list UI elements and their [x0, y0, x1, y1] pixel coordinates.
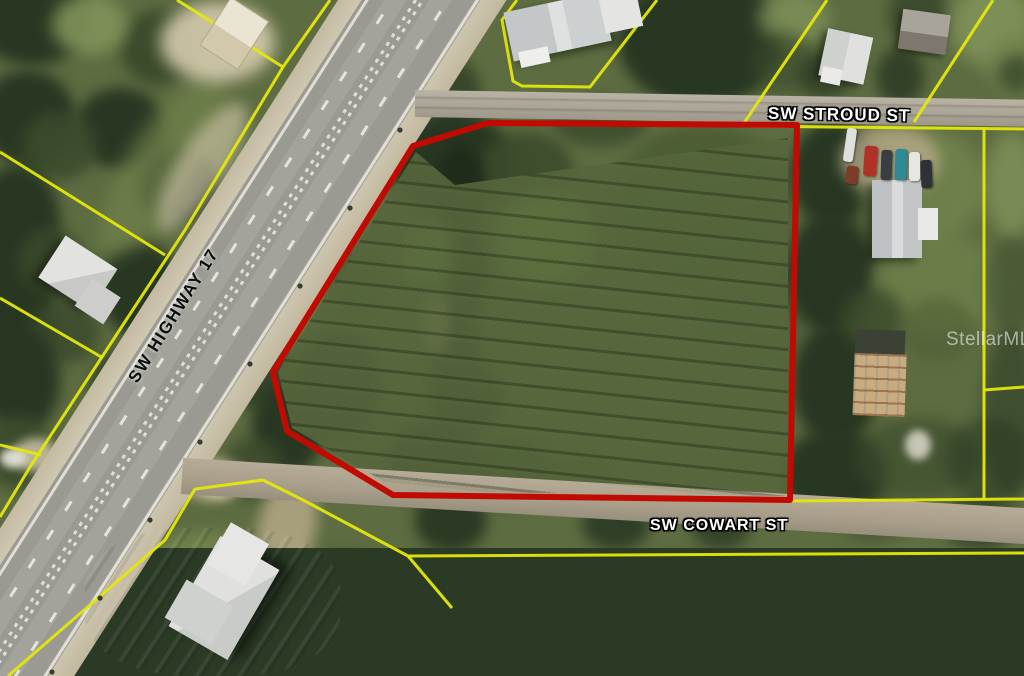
vehicle-red-truck — [863, 146, 878, 177]
utility-pole — [247, 361, 252, 366]
utility-pole — [297, 283, 302, 288]
house-north-b — [897, 9, 953, 60]
roof-wing — [599, 0, 643, 34]
roof — [872, 180, 922, 258]
vehicle-dark-car — [880, 150, 892, 180]
aerial-parcel-map: SW HIGHWAY 17 SW STROUD ST SW COWART ST … — [0, 0, 1024, 676]
shed-east-ruin — [850, 329, 911, 419]
utility-pole — [97, 595, 102, 600]
parcel-line-west-branch-c — [0, 445, 41, 455]
utility-pole — [197, 439, 202, 444]
parcel-line-east-branch — [984, 387, 1024, 390]
garage-roof — [918, 208, 938, 240]
utility-pole — [347, 205, 352, 210]
porch-roof — [820, 66, 843, 86]
stellar-mls-watermark: StellarMLS — [946, 329, 1024, 351]
property-boundary — [273, 123, 797, 500]
parcel-line-southwest-parcel-east — [263, 480, 452, 608]
vehicle-dark-car — [921, 160, 933, 188]
stroud-street-label: SW STROUD ST — [768, 104, 911, 126]
rusty-structure — [853, 353, 907, 417]
cowart-street-label: SW COWART ST — [650, 517, 788, 535]
utility-pole — [49, 669, 54, 674]
utility-pole — [147, 517, 152, 522]
vehicle-white-car — [909, 152, 920, 181]
utility-pole — [397, 127, 402, 132]
house-north-a — [816, 24, 890, 98]
house-south — [168, 532, 280, 670]
roof — [898, 9, 951, 55]
vehicle-equipment — [845, 165, 859, 184]
vehicle-teal-car — [894, 149, 907, 180]
house-east — [866, 180, 940, 262]
parcel-line-cowart-north-row-east — [790, 499, 1024, 501]
parcel-line-cowart-south-row — [408, 553, 1024, 556]
